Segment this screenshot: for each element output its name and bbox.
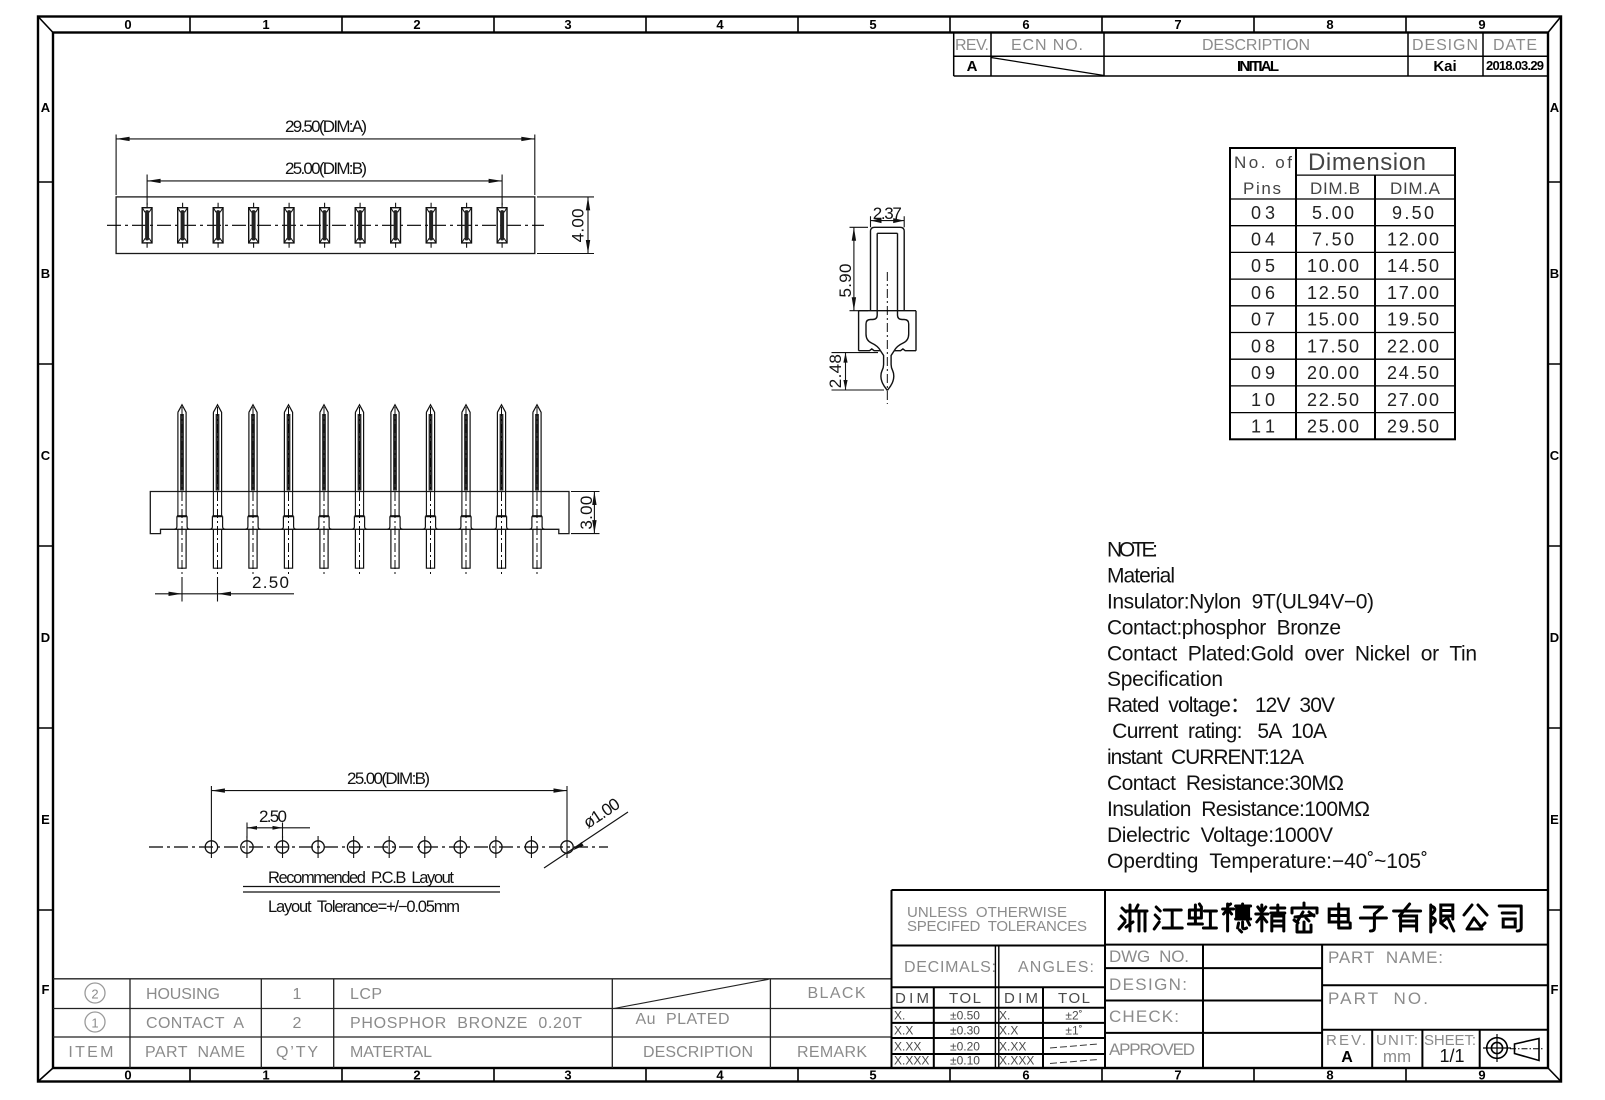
svg-text:9: 9 (1478, 1068, 1485, 1083)
svg-text:4: 4 (716, 1068, 724, 1083)
svg-text:5.90: 5.90 (836, 264, 855, 298)
svg-text:C: C (41, 448, 51, 463)
svg-text:X.X: X.X (999, 1024, 1018, 1038)
svg-text:±0.10: ±0.10 (950, 1054, 980, 1068)
svg-text:Au PLATED: Au PLATED (636, 1011, 730, 1028)
svg-text:ITEM: ITEM (68, 1044, 113, 1061)
svg-text:7.50: 7.50 (1312, 230, 1354, 250)
svg-text:±0.30: ±0.30 (950, 1024, 980, 1038)
svg-text:29.50(DIM:A): 29.50(DIM:A) (285, 117, 367, 136)
svg-text:20.00: 20.00 (1307, 363, 1359, 383)
svg-text:1/1: 1/1 (1439, 1046, 1464, 1066)
svg-text:DIM: DIM (895, 990, 929, 1007)
svg-text:1: 1 (293, 986, 302, 1003)
svg-text:Material: Material (1107, 565, 1175, 588)
svg-text:±0.50: ±0.50 (950, 1009, 980, 1023)
svg-text:12.00: 12.00 (1387, 230, 1439, 250)
svg-text:24.50: 24.50 (1387, 363, 1439, 383)
svg-text:8: 8 (1326, 1068, 1333, 1083)
svg-text:8: 8 (1326, 17, 1333, 32)
svg-text:Contact:phosphor Bronze: Contact:phosphor Bronze (1107, 616, 1341, 639)
svg-text:REV.: REV. (955, 37, 989, 54)
svg-text:REMARK: REMARK (797, 1044, 867, 1061)
svg-text:4.00: 4.00 (568, 208, 587, 242)
svg-text:19.50: 19.50 (1387, 310, 1439, 330)
svg-text:5: 5 (869, 17, 876, 32)
svg-text:Pins: Pins (1243, 179, 1281, 198)
svg-text:DATE: DATE (1493, 37, 1537, 54)
svg-text:X.: X. (894, 1009, 905, 1023)
svg-text:TOL: TOL (1058, 990, 1090, 1007)
svg-text:27.00: 27.00 (1387, 390, 1439, 410)
svg-text:9: 9 (1478, 17, 1485, 32)
svg-text:X.XX: X.XX (999, 1040, 1026, 1054)
svg-text:Insulator:Nylon 9T(UL94V−0): Insulator:Nylon 9T(UL94V−0) (1107, 590, 1374, 613)
svg-text:CONTACT A: CONTACT A (146, 1015, 244, 1032)
svg-text:15.00: 15.00 (1307, 310, 1359, 330)
svg-text:X.XXX: X.XXX (894, 1054, 929, 1068)
svg-text:DESIGN: DESIGN (1412, 37, 1478, 54)
svg-text:25.00(DIM:B): 25.00(DIM:B) (285, 159, 367, 178)
svg-text:2.37: 2.37 (873, 204, 902, 223)
svg-text:TOL: TOL (949, 990, 981, 1007)
svg-text:Insulation Resistance:100MΩ: Insulation Resistance:100MΩ (1107, 798, 1370, 821)
svg-text:A: A (967, 58, 978, 75)
svg-text:A: A (1341, 1049, 1353, 1066)
svg-text:X.: X. (999, 1009, 1010, 1023)
svg-text:14.50: 14.50 (1387, 256, 1439, 276)
svg-text:MATERTAL: MATERTAL (350, 1044, 432, 1061)
svg-text:X.XXX: X.XXX (999, 1054, 1034, 1068)
svg-text:Dimension: Dimension (1308, 149, 1426, 176)
svg-text:X.X: X.X (894, 1024, 913, 1038)
svg-text:D: D (1550, 630, 1559, 645)
svg-text:1: 1 (91, 1016, 98, 1031)
svg-text:10.00: 10.00 (1307, 256, 1359, 276)
svg-text:B: B (41, 266, 50, 281)
svg-text:HOUSING: HOUSING (146, 986, 220, 1003)
svg-text:APPROVED: APPROVED (1109, 1040, 1195, 1059)
svg-text:0: 0 (124, 17, 131, 32)
svg-text:DECIMALS:: DECIMALS: (904, 959, 996, 976)
svg-text:No. of: No. of (1234, 153, 1292, 172)
svg-text:5.00: 5.00 (1312, 203, 1354, 223)
svg-text:ANGLES:: ANGLES: (1018, 959, 1094, 976)
svg-text:SPECIFED TOLERANCES: SPECIFED TOLERANCES (907, 918, 1087, 935)
svg-text:BLACK: BLACK (808, 985, 866, 1002)
svg-text:2: 2 (293, 1015, 302, 1032)
svg-text:±2˚: ±2˚ (1065, 1009, 1082, 1023)
svg-text:Current rating: 5A 10A: Current rating: 5A 10A (1107, 720, 1327, 743)
svg-text:Rated voltage： 12V 30V: Rated voltage： 12V 30V (1107, 694, 1335, 717)
svg-text:PHOSPHOR BRONZE 0.20T: PHOSPHOR BRONZE 0.20T (350, 1015, 582, 1032)
svg-text:PART NAME:: PART NAME: (1328, 948, 1443, 967)
svg-text:25.00(DIM:B): 25.00(DIM:B) (347, 769, 430, 788)
svg-text:F: F (1551, 982, 1559, 997)
svg-text:7: 7 (1174, 17, 1181, 32)
svg-text:17.00: 17.00 (1387, 283, 1439, 303)
svg-text:instant CURRENT:12A: instant CURRENT:12A (1107, 746, 1304, 769)
svg-text:±0.20: ±0.20 (950, 1040, 980, 1054)
svg-text:0: 0 (124, 1068, 131, 1083)
svg-text:DWG NO.: DWG NO. (1109, 947, 1189, 966)
svg-text:2.50: 2.50 (252, 573, 289, 592)
svg-text:NOTE:: NOTE: (1107, 539, 1158, 562)
svg-text:DIM.B: DIM.B (1310, 179, 1360, 198)
svg-text:mm: mm (1383, 1047, 1411, 1066)
svg-text:PART NAME: PART NAME (145, 1044, 245, 1061)
svg-text:2: 2 (91, 987, 98, 1002)
svg-text:ECN NO.: ECN NO. (1011, 37, 1083, 54)
svg-text:DIM.A: DIM.A (1390, 179, 1441, 198)
svg-text:Kai: Kai (1433, 58, 1456, 75)
svg-text:E: E (1550, 812, 1559, 827)
svg-text:6: 6 (1022, 17, 1029, 32)
svg-text:B: B (1550, 266, 1559, 281)
svg-text:A: A (41, 100, 51, 115)
svg-text:2.50: 2.50 (259, 807, 287, 826)
svg-text:Operdting Temperature:−40˚~10: Operdting Temperature:−40˚~105˚ (1107, 850, 1428, 873)
svg-text:17.50: 17.50 (1307, 336, 1359, 356)
svg-text:6: 6 (1022, 1068, 1029, 1083)
svg-text:12.50: 12.50 (1307, 283, 1359, 303)
svg-text:Contact Resistance:30MΩ: Contact Resistance:30MΩ (1107, 772, 1344, 795)
svg-text:E: E (41, 812, 50, 827)
svg-text:CHECK:: CHECK: (1109, 1007, 1179, 1026)
svg-text:D: D (41, 630, 50, 645)
svg-text:29.50: 29.50 (1387, 417, 1439, 437)
svg-text:Q’TY: Q’TY (276, 1044, 318, 1061)
svg-text:Dielectric Voltage:1000V: Dielectric Voltage:1000V (1107, 824, 1333, 847)
svg-text:3: 3 (564, 1068, 571, 1083)
svg-text:DIM: DIM (1004, 990, 1038, 1007)
svg-text:25.00: 25.00 (1307, 417, 1359, 437)
svg-text:INITIAL: INITIAL (1237, 58, 1279, 75)
svg-text:2: 2 (413, 17, 420, 32)
svg-text:DESIGN:: DESIGN: (1109, 975, 1187, 994)
svg-text:1: 1 (262, 17, 269, 32)
svg-text:3: 3 (564, 17, 571, 32)
svg-text:22.00: 22.00 (1387, 336, 1439, 356)
svg-text:2.48: 2.48 (826, 354, 845, 388)
svg-text:LCP: LCP (350, 986, 382, 1003)
svg-text:22.50: 22.50 (1307, 390, 1359, 410)
svg-text:9.50: 9.50 (1392, 203, 1434, 223)
svg-text:2: 2 (413, 1068, 420, 1083)
svg-text:F: F (42, 982, 50, 997)
svg-text:±1˚: ±1˚ (1065, 1024, 1082, 1038)
svg-text:Layout Tolerance=+/−0.05mm: Layout Tolerance=+/−0.05mm (268, 898, 460, 916)
svg-text:DESCRIPTION: DESCRIPTION (1202, 37, 1310, 54)
svg-text:A: A (1550, 100, 1560, 115)
svg-text:DESCRIPTION: DESCRIPTION (643, 1044, 753, 1061)
svg-text:1: 1 (262, 1068, 269, 1083)
svg-text:Contact Plated:Gold over Ni: Contact Plated:Gold over Nickel or Tin (1107, 642, 1477, 665)
svg-text:2018.03.29: 2018.03.29 (1486, 58, 1544, 73)
svg-text:5: 5 (869, 1068, 876, 1083)
svg-text:Specification: Specification (1107, 668, 1223, 691)
svg-text:Recommended P.C.B Layout: Recommended P.C.B Layout (268, 869, 454, 887)
svg-text:X.XX: X.XX (894, 1040, 921, 1054)
svg-text:4: 4 (716, 17, 724, 32)
svg-text:C: C (1550, 448, 1560, 463)
svg-text:3.00: 3.00 (577, 496, 596, 530)
svg-text:7: 7 (1174, 1068, 1181, 1083)
